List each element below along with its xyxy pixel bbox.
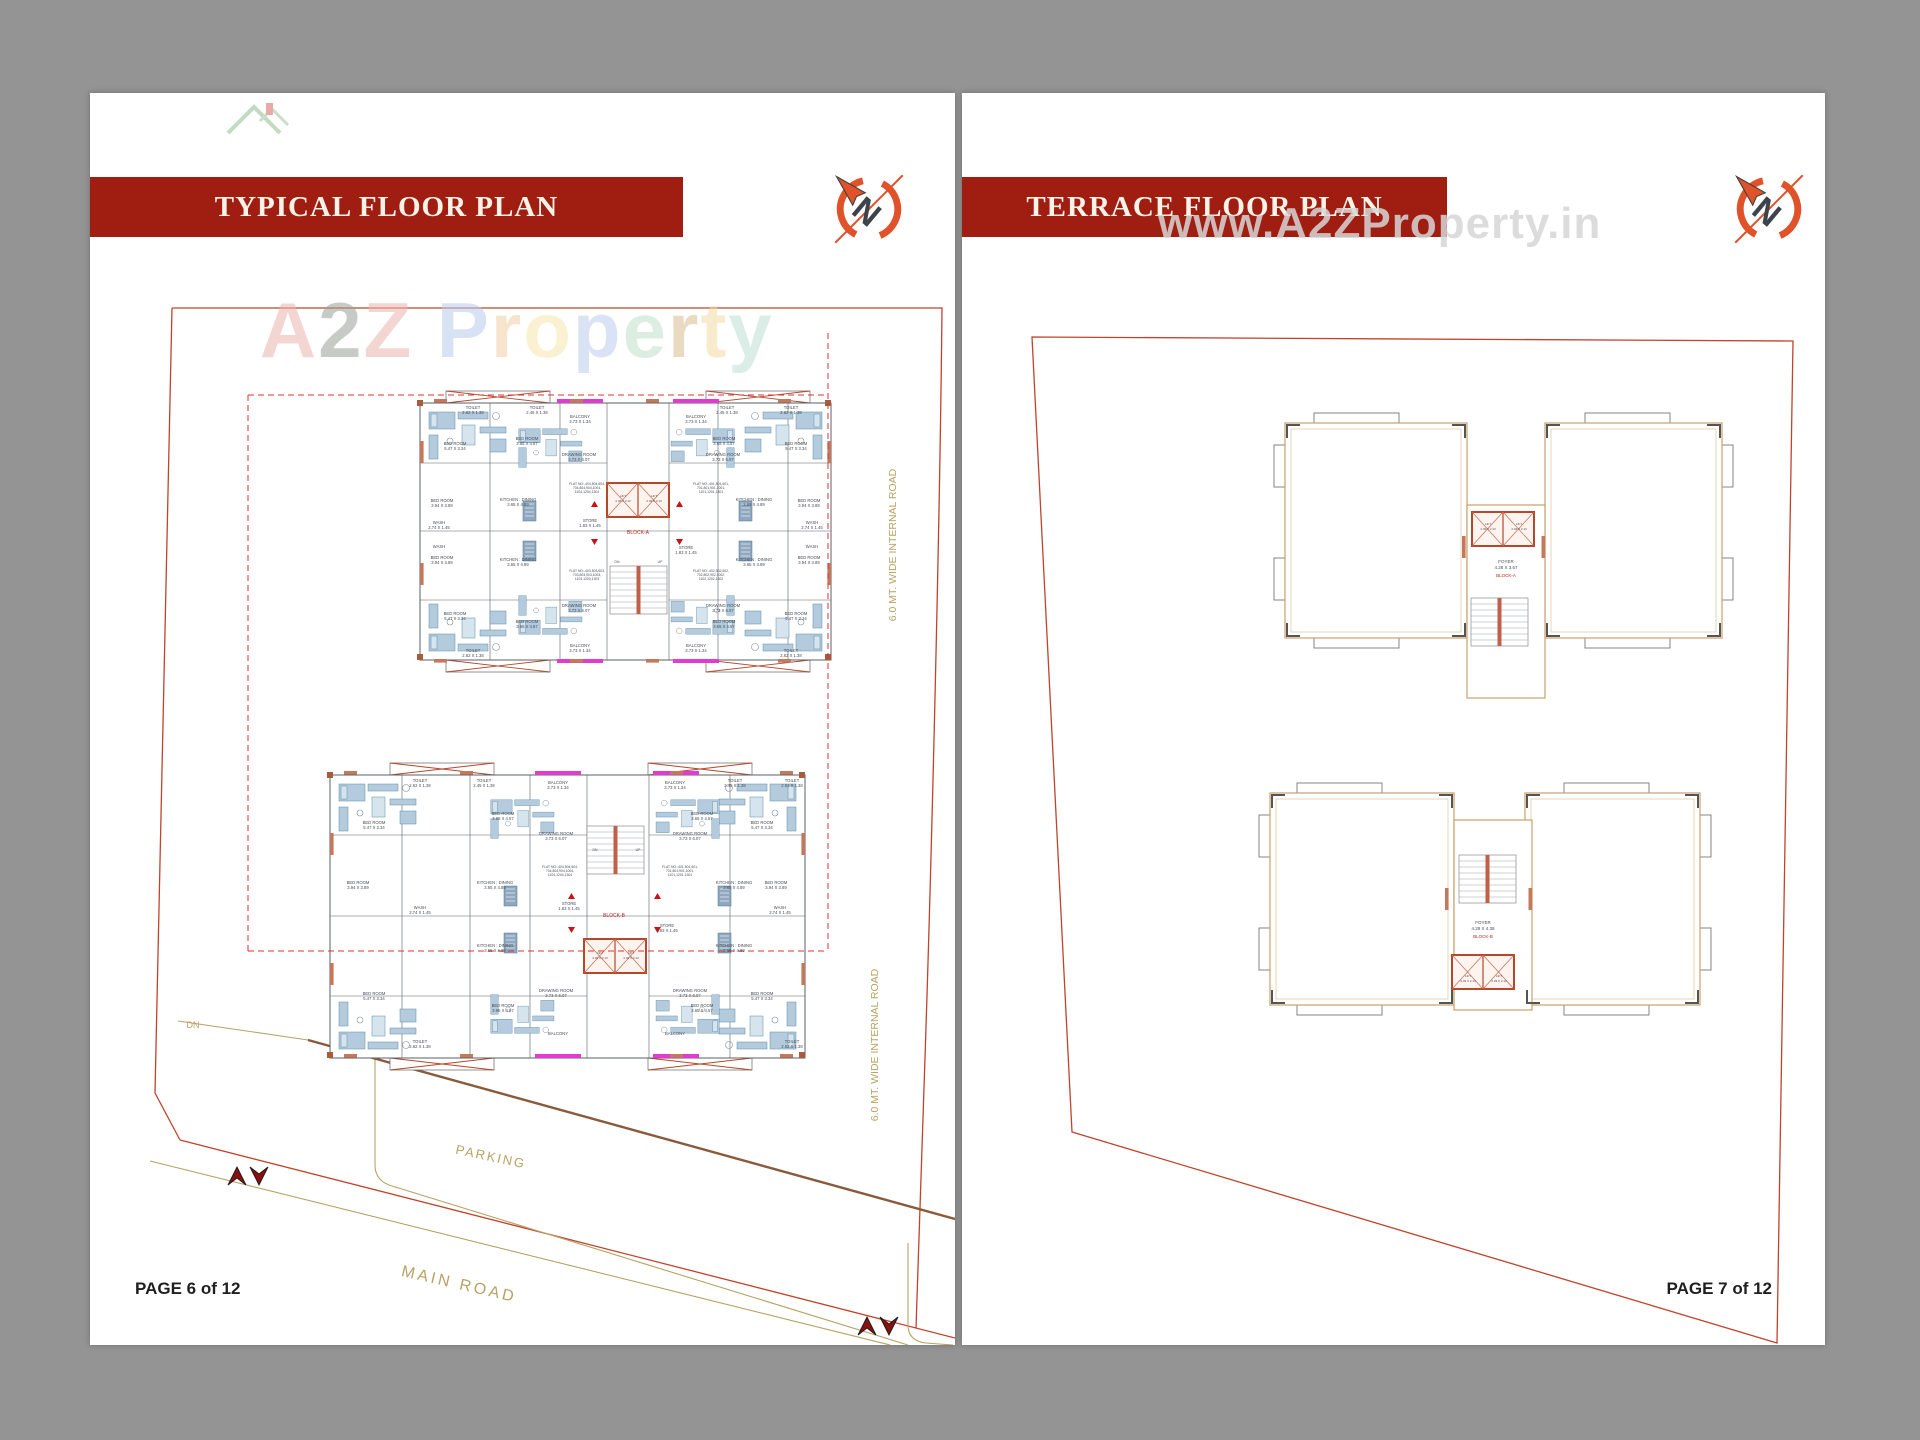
page-number: PAGE 6 of 12	[135, 1279, 241, 1299]
plan-label: 3.65 X 4.57	[691, 816, 713, 821]
plan-label: 2.62 X 1.38	[409, 1044, 431, 1049]
compass-north-icon	[833, 173, 905, 245]
plan-label: 5.47 X 3.34	[785, 616, 807, 621]
plan-label: WASH	[433, 544, 445, 549]
compass-north-icon	[1733, 173, 1805, 245]
plan-label: 2.74 X 1.45	[409, 910, 431, 915]
plan-label: 3.65 X 4.89	[507, 562, 529, 567]
watermark-letter: o	[523, 286, 573, 374]
plan-label: 3.65 X 4.57	[492, 1008, 514, 1013]
plan-label: LIFT	[651, 494, 657, 498]
plan-label: 3.73 X 6.07	[712, 457, 734, 462]
plan-label: 2.45 X 1.38	[724, 783, 746, 788]
plan-label: 1.83 X 1.45	[675, 550, 697, 555]
watermark-letter: t	[700, 286, 728, 374]
plan-label: 1103,1203,1303	[575, 577, 599, 581]
plan-label: 2.74 X 1.45	[428, 525, 450, 530]
terrace-plan-block-b	[1259, 783, 1711, 1015]
plan-label: 3.65 X 4.89	[723, 885, 745, 890]
plan-label: 2.62 X 1.38	[409, 783, 431, 788]
plan-label: 5.47 X 3.34	[363, 996, 385, 1001]
plan-label: BALCONY	[548, 1031, 568, 1036]
plan-label: 2.74 X 1.45	[769, 910, 791, 915]
plan-label: BLOCK-A	[627, 530, 650, 536]
plan-label: 2.62 X 1.38	[462, 653, 484, 658]
av-logo-mark	[858, 1317, 898, 1335]
plan-label: 2.45 X 1.38	[473, 783, 495, 788]
block-b-plan	[327, 763, 805, 1070]
plan-label: FOYER	[1475, 920, 1491, 925]
block-a-plan	[417, 391, 831, 672]
plan-label: DN	[615, 560, 620, 564]
plan-label: UP	[636, 848, 641, 852]
plan-label: LIFT	[597, 951, 603, 955]
plan-label: 2.03 X 2.13	[646, 499, 662, 503]
plan-label: 3.65 X 4.57	[713, 624, 735, 629]
plan-label: 2.03 X 2.13	[1491, 979, 1507, 983]
plan-label: 3.73 X 1.34	[685, 648, 707, 653]
watermark-letter: e	[623, 286, 668, 374]
plan-label: 3.73 X 6.07	[679, 993, 701, 998]
plan-label: 3.94 X 3.89	[765, 885, 787, 890]
plan-label: LIFT	[1465, 974, 1471, 978]
plan-label: 5.47 X 3.34	[444, 446, 466, 451]
plan-label: 4.28 X 4.38	[1471, 926, 1495, 931]
plan-label: 3.65 X 4.89	[507, 502, 529, 507]
plan-label: BLOCK-B	[603, 913, 626, 919]
page-number: PAGE 7 of 12	[1667, 1279, 1773, 1299]
plan-label: 1104,1204,1304	[575, 490, 599, 494]
plan-label: MAIN ROAD	[400, 1263, 518, 1306]
plan-label: 3.73 X 1.34	[569, 648, 591, 653]
plan-label: 1101,1201,1301	[668, 873, 692, 877]
plan-label: LIFT	[620, 494, 626, 498]
plan-label: 3.65 X 4.89	[743, 562, 765, 567]
plan-label: 2.45 X 1.38	[716, 410, 738, 415]
plan-label: 5.47 X 3.34	[751, 825, 773, 830]
plan-label: 3.65 X 4.89	[723, 948, 745, 953]
plan-label: 2.03 X 2.13	[1511, 527, 1527, 531]
plan-label: 5.47 X 3.34	[444, 616, 466, 621]
plan-label: PARKING	[454, 1142, 527, 1172]
plan-label: 2.62 X 1.38	[780, 410, 802, 415]
plan-label: BALCONY	[665, 1031, 685, 1036]
plan-label: 4.28 X 3.67	[1494, 565, 1518, 570]
plan-label: 2.45 X 1.38	[526, 410, 548, 415]
plan-label: LIFT	[1496, 974, 1502, 978]
plan-label: 2.03 X 2.13	[623, 956, 639, 960]
watermark-letter: 2	[318, 286, 363, 374]
plan-label: 3.73 X 1.34	[664, 785, 686, 790]
watermark-letter: y	[728, 286, 773, 374]
watermark-letter	[413, 286, 437, 374]
brochure-spread: DNPARKINGMAIN ROAD6.0 MT. WIDE INTERNAL …	[0, 0, 1920, 1440]
plan-label: 2.03 X 2.13	[592, 956, 608, 960]
watermark-letter: p	[573, 286, 623, 374]
plan-label: 3.94 X 3.89	[798, 503, 820, 508]
plan-label: 3.65 X 4.89	[484, 885, 506, 890]
plan-label: 3.94 X 3.89	[431, 560, 453, 565]
plan-label: 5.47 X 3.34	[363, 825, 385, 830]
page-7-terrace-floor-plan: FOYER4.28 X 3.67BLOCK-ALIFT2.03 X 2.13LI…	[962, 93, 1825, 1345]
plan-label: 2.62 X 1.38	[781, 1044, 803, 1049]
plan-label: 1.83 X 1.45	[558, 906, 580, 911]
plan-label: BLOCK-B	[1473, 934, 1493, 939]
plan-label: 2.62 X 1.38	[462, 410, 484, 415]
plan-label: 1101,1201,1301	[699, 490, 723, 494]
watermark-letter: A	[260, 286, 318, 374]
plan-label: 2.03 X 2.13	[1480, 527, 1496, 531]
plan-label: DN	[593, 848, 598, 852]
plan-label: 2.74 X 1.45	[801, 525, 823, 530]
plan-label: 3.65 X 4.89	[743, 502, 765, 507]
house-roof-icon	[222, 95, 302, 139]
url-watermark: www.A2ZProperty.in	[1158, 199, 1601, 249]
plan-label: 3.65 X 4.57	[691, 1008, 713, 1013]
plan-label: 1.83 X 1.45	[579, 523, 601, 528]
plan-label: 2.62 X 1.38	[781, 783, 803, 788]
plan-label: 3.73 X 1.34	[569, 419, 591, 424]
plan-label: 3.73 X 6.07	[545, 993, 567, 998]
plan-label: 3.73 X 6.07	[568, 457, 590, 462]
plan-label: 2.03 X 2.13	[615, 499, 631, 503]
plan-label: 3.65 X 4.57	[516, 624, 538, 629]
plan-label: 1104,1204,1304	[548, 873, 572, 877]
plan-label: 3.65 X 4.57	[713, 441, 735, 446]
plan-label: 3.65 X 4.89	[484, 948, 506, 953]
plan-label: 2.62 X 1.38	[780, 653, 802, 658]
plan-label: UP	[658, 560, 663, 564]
plan-label: 3.73 X 6.07	[545, 836, 567, 841]
plan-label: 3.73 X 6.07	[568, 608, 590, 613]
plan-label: 3.73 X 6.07	[679, 836, 701, 841]
plan-label: 3.65 X 4.57	[492, 816, 514, 821]
plan-label: LIFT	[1516, 522, 1522, 526]
plan-label: 3.65 X 4.57	[516, 441, 538, 446]
plan-label: 3.73 X 1.34	[547, 785, 569, 790]
plan-label: 5.47 X 3.34	[785, 446, 807, 451]
plan-label: 1102,1202,1302	[699, 577, 723, 581]
plan-label: 3.73 X 6.07	[712, 608, 734, 613]
watermark-letter: P	[437, 286, 491, 374]
plan-label: 3.94 X 3.89	[798, 560, 820, 565]
plan-label: 1.83 X 1.45	[656, 928, 678, 933]
plan-label: 5.47 X 3.34	[751, 996, 773, 1001]
plan-label: 3.73 X 1.34	[685, 419, 707, 424]
plan-label: LIFT	[1485, 522, 1491, 526]
watermark-letter: Z	[364, 286, 414, 374]
watermark-letter: r	[491, 286, 523, 374]
a2z-watermark: A2Z Property	[168, 103, 774, 376]
plan-label: 6.0 MT. WIDE INTERNAL ROAD	[869, 968, 881, 1121]
plan-label: BLOCK-A	[1496, 573, 1516, 578]
plan-label: 6.0 MT. WIDE INTERNAL ROAD	[887, 468, 899, 621]
terrace-plan-block-a	[1274, 413, 1733, 698]
plan-label: DN	[187, 1020, 200, 1030]
plan-label: 3.94 X 3.89	[431, 503, 453, 508]
plan-label: LIFT	[628, 951, 634, 955]
plan-label: 2.03 X 2.13	[1460, 979, 1476, 983]
terrace-floor-plan-drawing: FOYER4.28 X 3.67BLOCK-ALIFT2.03 X 2.13LI…	[962, 93, 1825, 1345]
page-6-typical-floor-plan: DNPARKINGMAIN ROAD6.0 MT. WIDE INTERNAL …	[90, 93, 955, 1345]
plan-label: FOYER	[1498, 559, 1514, 564]
plan-label: WASH	[806, 544, 818, 549]
watermark-letter: r	[668, 286, 700, 374]
plan-label: 3.94 X 3.89	[347, 885, 369, 890]
